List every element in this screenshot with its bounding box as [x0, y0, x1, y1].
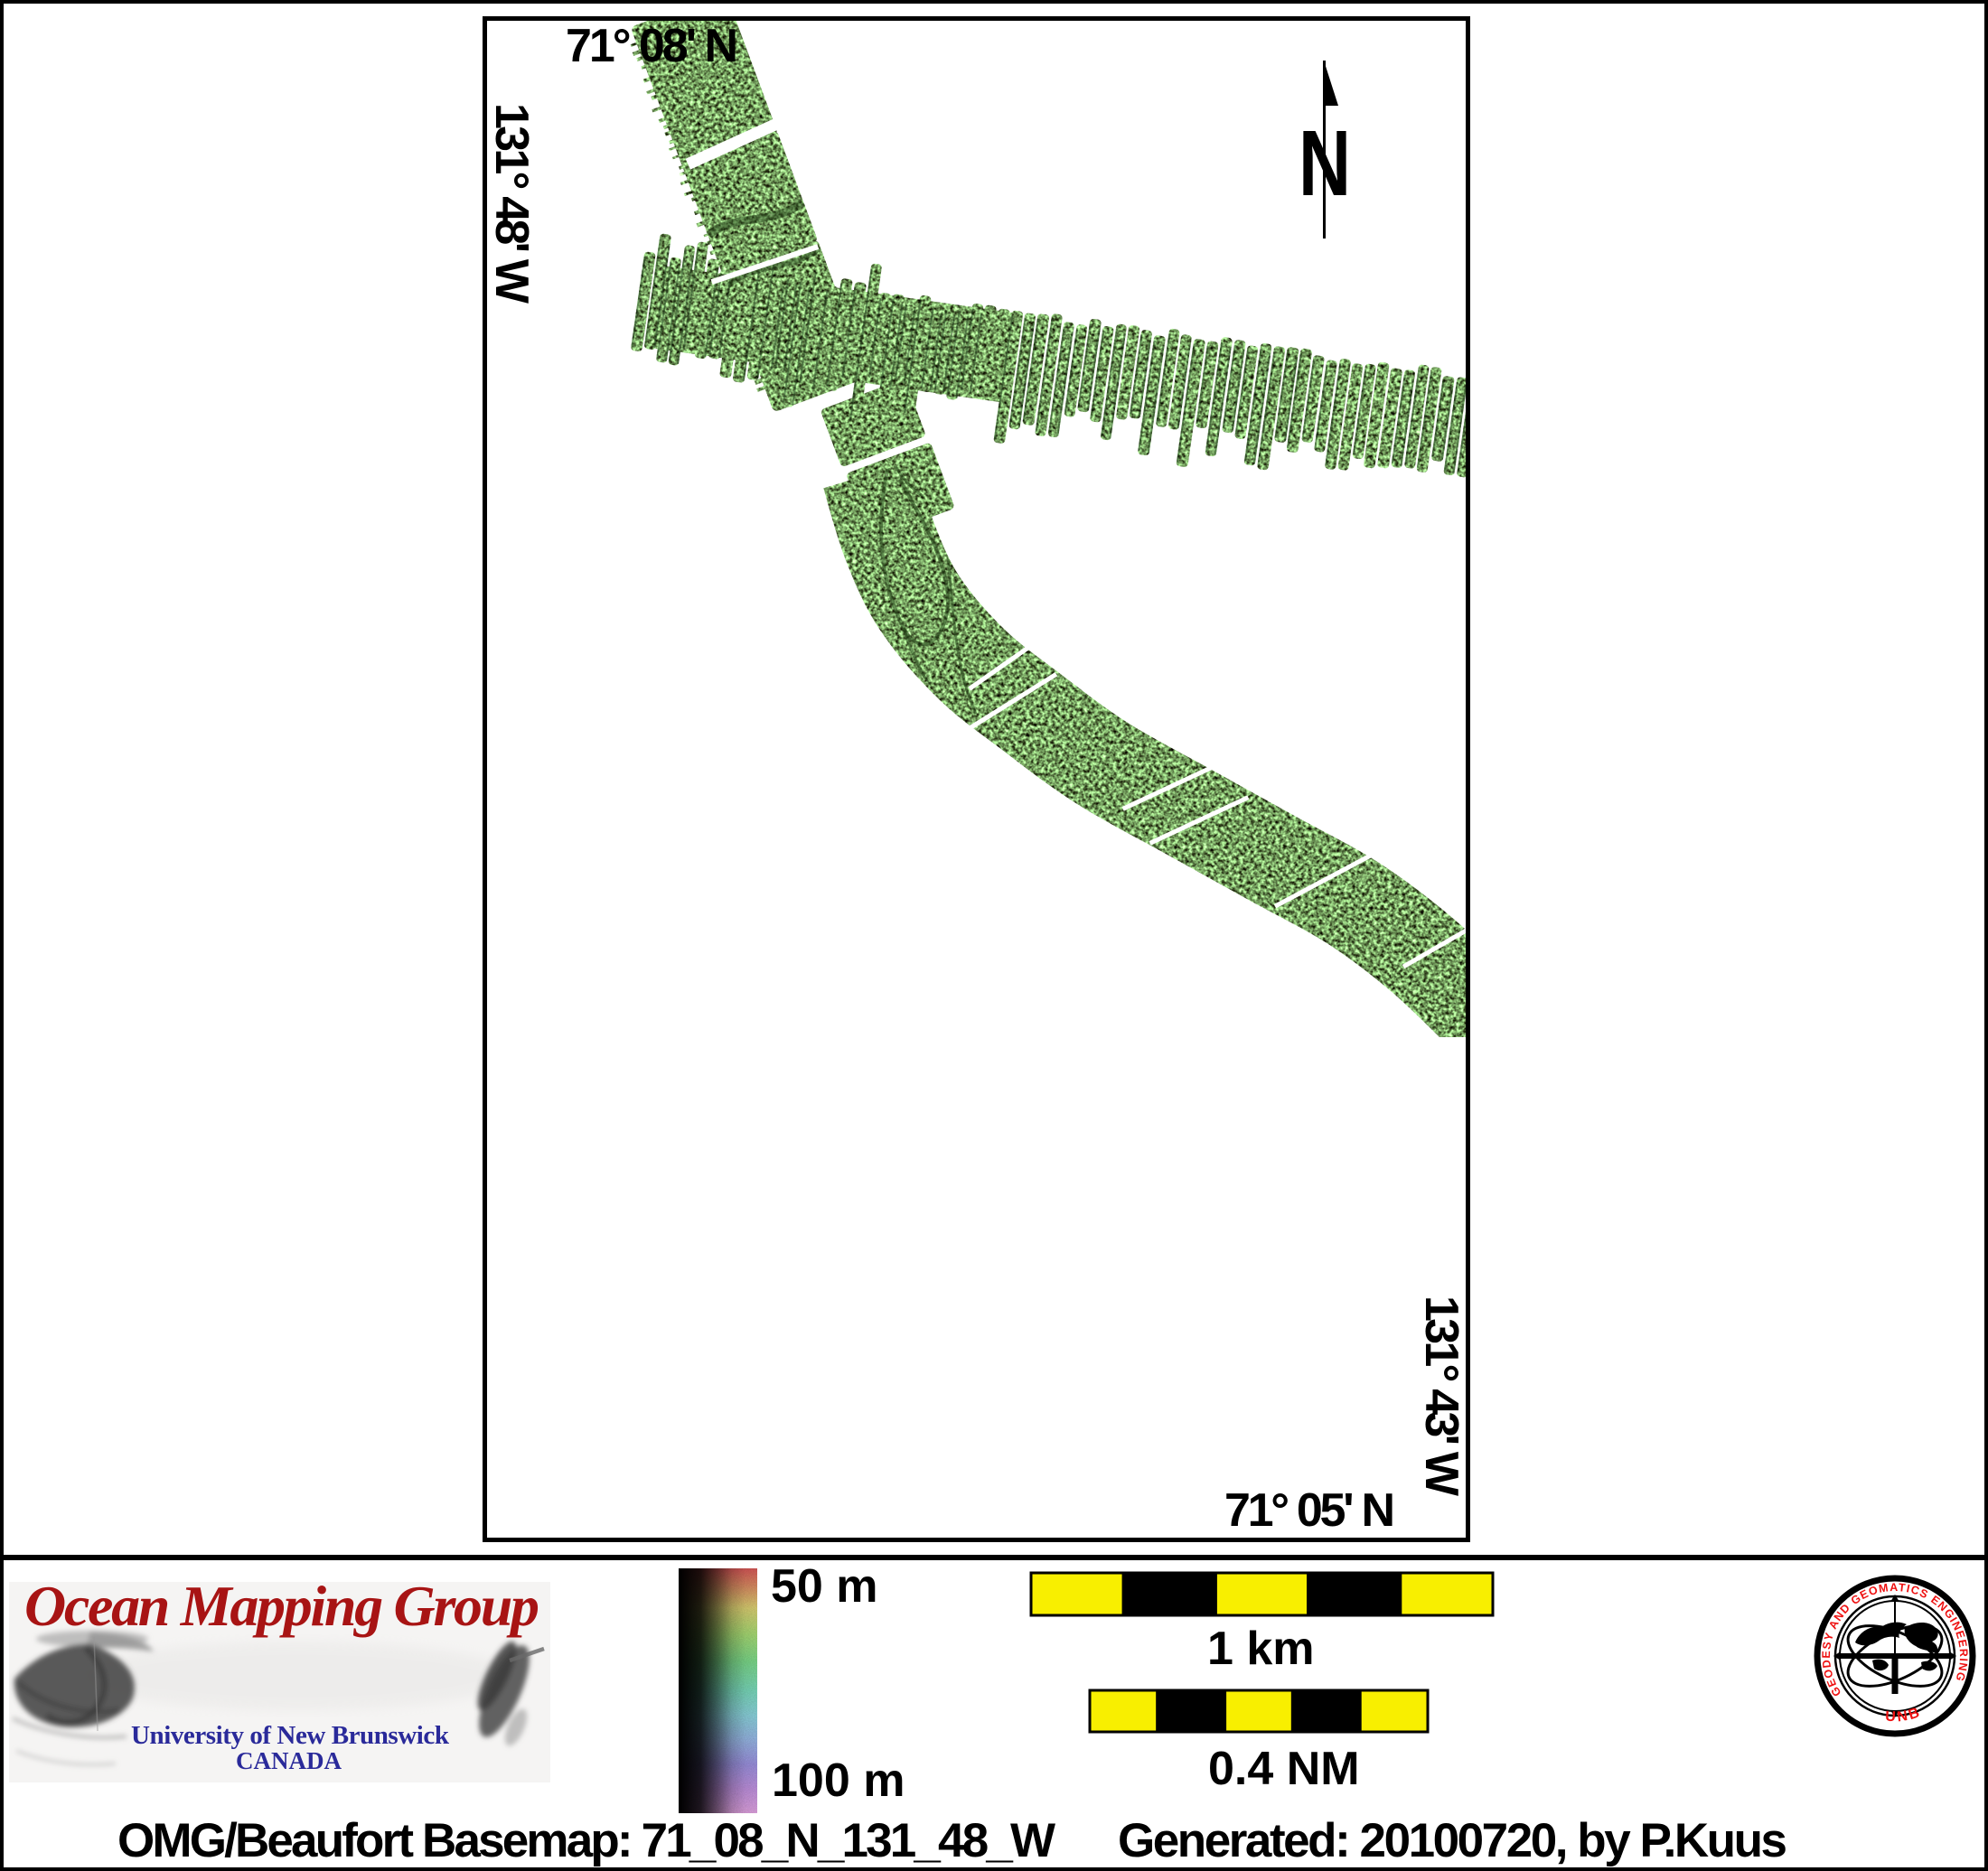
svg-text:131° 43' W: 131° 43' W	[1415, 1296, 1468, 1497]
svg-text:UNB: UNB	[1885, 1705, 1924, 1726]
svg-text:N: N	[1299, 110, 1351, 215]
svg-text:0.4 NM: 0.4 NM	[1208, 1743, 1360, 1795]
svg-text:Ocean Mapping Group: Ocean Mapping Group	[24, 1574, 539, 1638]
svg-text:100 m: 100 m	[772, 1754, 905, 1807]
svg-text:Generated: 20100720, by P.Kuus: Generated: 20100720, by P.Kuus	[1118, 1814, 1787, 1867]
svg-text:CANADA: CANADA	[236, 1747, 342, 1774]
svg-text:131° 48' W: 131° 48' W	[485, 103, 538, 304]
svg-text:OMG/Beaufort Basemap: 71_08_N_: OMG/Beaufort Basemap: 71_08_N_131_48_W	[117, 1814, 1055, 1867]
svg-text:71° 08' N: 71° 08' N	[566, 20, 738, 72]
svg-text:1 km: 1 km	[1207, 1623, 1315, 1675]
svg-text:University of New Brunswick: University of New Brunswick	[131, 1721, 450, 1750]
svg-text:50 m: 50 m	[771, 1560, 878, 1613]
svg-text:71° 05' N: 71° 05' N	[1224, 1484, 1395, 1537]
